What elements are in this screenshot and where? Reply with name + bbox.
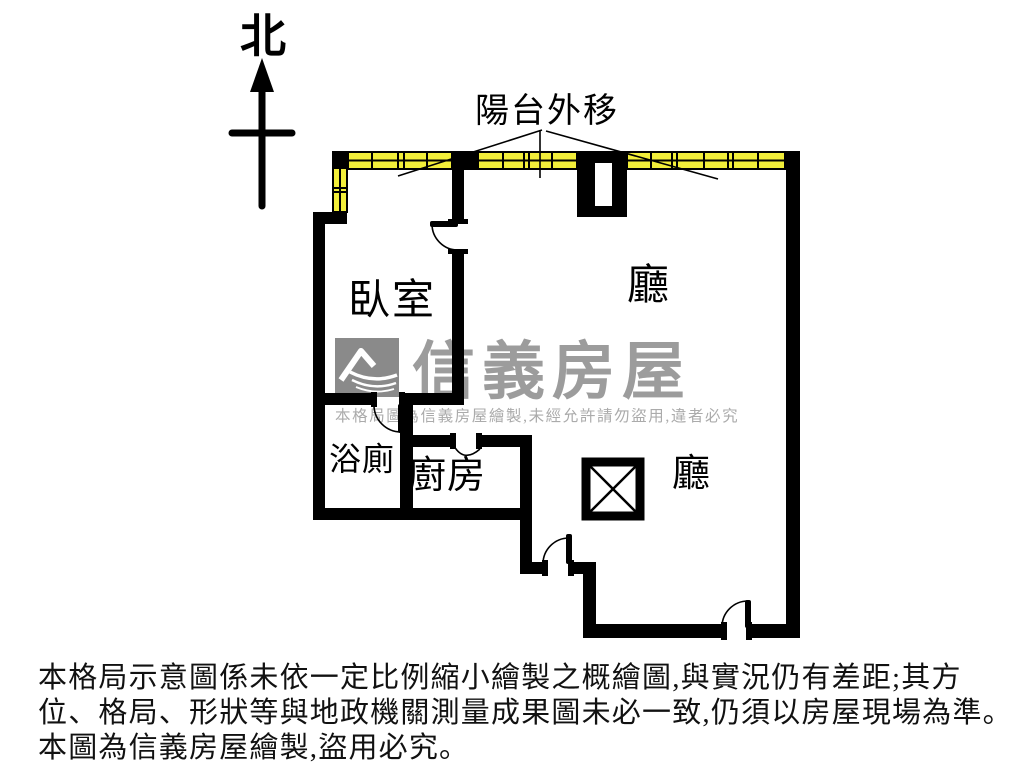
disclaimer-line-1: 本格局示意圖係未依一定比例縮小繪製之概繪圖,與實況仍有差距;其方	[38, 661, 962, 694]
room-label-living-lower: 廳	[672, 453, 710, 495]
balcony-label: 陽台外移	[475, 92, 619, 130]
watermark-notice: 本格局圖為信義房屋繪製,未經允許請勿盜用,違者必究	[335, 406, 739, 425]
room-label-bathroom: 浴廁	[329, 441, 395, 477]
north-arrow-icon	[232, 58, 292, 206]
floor-plan-drawing: 北 信義房屋 本格局圖為信義房屋繪製,未經允許請勿盜用,違者必究	[0, 0, 1024, 768]
room-label-bedroom: 臥室	[348, 277, 436, 324]
disclaimer: 本格局示意圖係未依一定比例縮小繪製之概繪圖,與實況仍有差距;其方 位、格局、形狀…	[38, 661, 1013, 764]
sinyi-mountain-logo-icon	[335, 338, 399, 397]
balcony-window-strip	[333, 152, 785, 212]
room-label-living-upper: 廳	[627, 262, 669, 309]
watermark: 信義房屋 本格局圖為信義房屋繪製,未經允許請勿盜用,違者必究	[335, 337, 739, 425]
room-label-kitchen: 廚房	[408, 455, 486, 497]
entrance-door door-swing-arc-icon	[721, 600, 752, 640]
bedroom-door door-swing-arc-icon	[430, 219, 468, 254]
disclaimer-line-3: 本圖為信義房屋繪製,盜用必究。	[38, 731, 469, 764]
crossed-square-pillar-icon	[586, 462, 640, 516]
disclaimer-line-2: 位、格局、形狀等與地政機關測量成果圖未必一致,仍須以房屋現場為準。	[38, 696, 1013, 729]
living-inner-door door-swing-arc-icon	[542, 534, 574, 576]
north-compass: 北	[232, 11, 292, 206]
north-label: 北	[240, 11, 286, 62]
kitchen-door door-swing-arc-icon	[450, 433, 482, 455]
floor-plan-page: 北 信義房屋 本格局圖為信義房屋繪製,未經允許請勿盜用,違者必究	[0, 0, 1024, 768]
